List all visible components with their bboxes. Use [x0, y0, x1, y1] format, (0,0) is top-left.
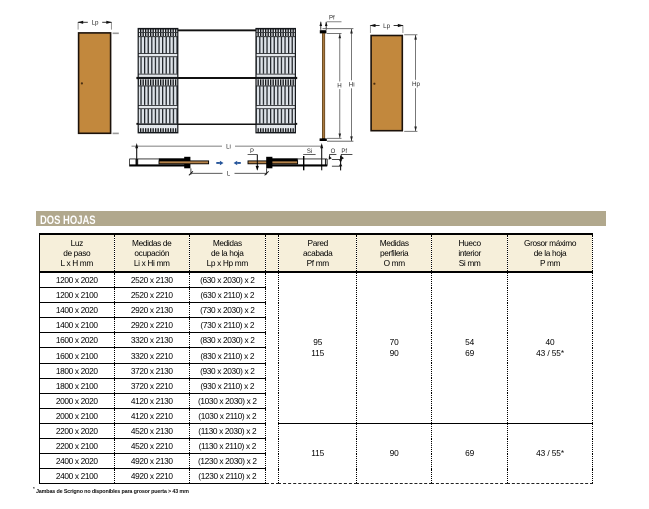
svg-text:L: L [227, 172, 231, 178]
svg-text:Pf: Pf [341, 149, 347, 155]
svg-text:Pf: Pf [329, 15, 335, 21]
svg-text:Hi: Hi [349, 82, 355, 89]
svg-text:O: O [331, 149, 336, 155]
svg-text:H: H [337, 83, 341, 90]
svg-text:Li: Li [226, 145, 231, 151]
svg-text:Lp: Lp [383, 23, 390, 30]
svg-text:Hp: Hp [412, 81, 420, 88]
svg-text:Lp: Lp [92, 20, 99, 27]
